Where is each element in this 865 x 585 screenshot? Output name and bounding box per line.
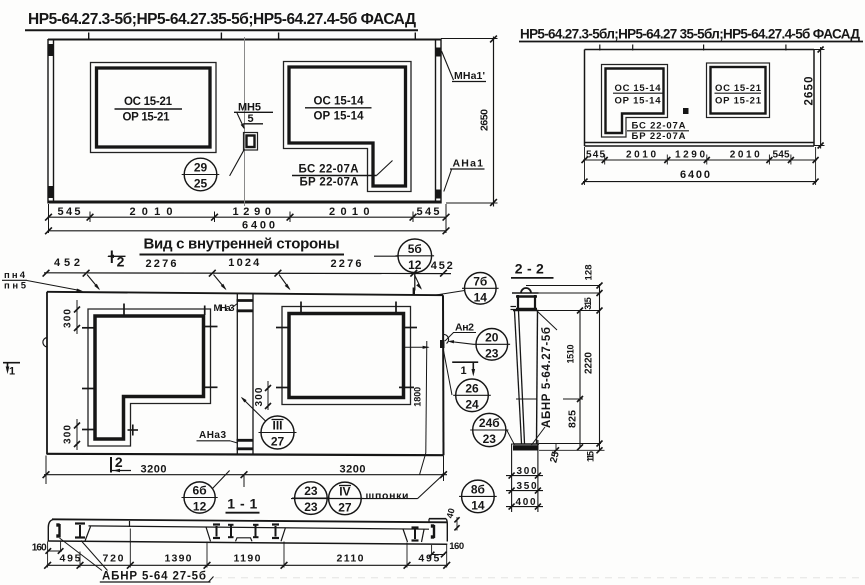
svg-text:шпонки: шпонки: [366, 490, 409, 502]
svg-text:Ан2: Ан2: [455, 322, 474, 334]
svg-text:АБНР 5-64.27-5б: АБНР 5-64.27-5б: [541, 327, 553, 428]
svg-text:12: 12: [193, 500, 207, 514]
svg-text:23: 23: [483, 432, 497, 446]
svg-text:БС 22-07А: БС 22-07А: [299, 164, 359, 176]
svg-text:1190: 1190: [234, 553, 261, 565]
svg-text:2220: 2220: [584, 352, 595, 374]
svg-text:ОС 15-21: ОС 15-21: [124, 96, 173, 108]
svg-text:25: 25: [194, 177, 208, 191]
svg-text:14: 14: [474, 290, 488, 304]
svg-text:БС 22-07А: БС 22-07А: [632, 121, 686, 132]
svg-text:545: 545: [586, 150, 605, 161]
svg-text:ОС 15-21: ОС 15-21: [715, 83, 762, 94]
svg-text:НР5-64.27.3-5б;НР5-64.27.35-5б: НР5-64.27.3-5б;НР5-64.27.35-5б;НР5-64.27…: [28, 11, 416, 28]
svg-text:2: 2: [115, 454, 123, 470]
svg-text:24б: 24б: [479, 416, 500, 430]
svg-text:АНа3: АНа3: [199, 430, 226, 441]
svg-text:350: 350: [517, 481, 537, 492]
svg-text:315: 315: [583, 297, 593, 310]
svg-text:1: 1: [460, 365, 466, 377]
svg-text:1024: 1024: [228, 257, 260, 269]
svg-text:300: 300: [517, 466, 537, 477]
svg-text:ОР 15-21: ОР 15-21: [715, 96, 762, 107]
svg-text:160: 160: [449, 541, 464, 552]
svg-text:400: 400: [516, 497, 536, 508]
svg-text:825: 825: [567, 410, 579, 428]
svg-text:23: 23: [304, 484, 318, 498]
svg-text:14: 14: [471, 498, 485, 512]
svg-text:7б: 7б: [473, 274, 487, 288]
svg-text:27: 27: [271, 435, 285, 449]
svg-text:300: 300: [254, 387, 265, 406]
svg-text:1: 1: [9, 366, 15, 378]
svg-text:2650: 2650: [803, 77, 815, 106]
svg-text:ОР 15-14: ОР 15-14: [615, 96, 662, 107]
svg-text:452: 452: [54, 257, 80, 269]
svg-text:1-1: 1-1: [227, 496, 257, 512]
svg-text:26: 26: [465, 381, 479, 395]
svg-text:23: 23: [304, 500, 318, 514]
svg-text:пн4: пн4: [4, 270, 26, 281]
svg-text:545: 545: [773, 150, 790, 161]
svg-text:НР5-64.27.3-5бл;НР5-64.27 35-5: НР5-64.27.3-5бл;НР5-64.27 35-5бл;НР5-64.…: [520, 27, 860, 42]
svg-text:545: 545: [417, 206, 440, 218]
svg-text:8б: 8б: [471, 482, 485, 496]
svg-text:128: 128: [584, 265, 595, 281]
svg-text:27: 27: [338, 500, 352, 514]
svg-text:24: 24: [465, 397, 479, 411]
svg-text:2110: 2110: [337, 553, 364, 565]
svg-text:ОС 15-14: ОС 15-14: [314, 96, 365, 108]
svg-text:1510: 1510: [566, 345, 576, 364]
svg-text:5: 5: [247, 113, 253, 125]
svg-text:МНа1': МНа1': [454, 70, 485, 82]
svg-text:452: 452: [431, 260, 453, 272]
svg-text:3200: 3200: [141, 464, 167, 476]
svg-text:6400: 6400: [680, 169, 710, 181]
svg-text:495: 495: [418, 553, 439, 565]
svg-text:1800: 1800: [412, 387, 422, 407]
svg-text:2-2: 2-2: [515, 261, 544, 277]
svg-text:ОР 15-14: ОР 15-14: [314, 111, 365, 123]
svg-text:БР 22-07А: БР 22-07А: [300, 177, 359, 189]
svg-text:IV: IV: [339, 484, 350, 498]
svg-text:пн5: пн5: [4, 281, 27, 292]
svg-text:ОС 15-14: ОС 15-14: [615, 83, 662, 94]
svg-text:2: 2: [117, 254, 125, 270]
svg-text:12: 12: [408, 258, 422, 272]
svg-text:3200: 3200: [340, 464, 366, 476]
svg-text:ОР 15-21: ОР 15-21: [123, 112, 171, 124]
svg-text:115: 115: [585, 451, 595, 462]
svg-text:300: 300: [63, 309, 74, 328]
svg-text:720: 720: [103, 553, 124, 565]
svg-text:300: 300: [63, 425, 74, 444]
svg-text:III: III: [272, 419, 282, 433]
svg-text:5б: 5б: [408, 242, 422, 256]
svg-text:2650: 2650: [479, 109, 491, 131]
svg-text:545: 545: [58, 206, 81, 218]
svg-text:20: 20: [485, 330, 499, 344]
svg-text:АНа1: АНа1: [453, 157, 484, 169]
svg-text:23: 23: [485, 346, 499, 360]
svg-text:6б: 6б: [193, 484, 207, 498]
svg-text:29: 29: [194, 161, 208, 175]
svg-text:160: 160: [32, 543, 47, 554]
svg-text:495: 495: [60, 553, 81, 565]
svg-text:1390: 1390: [165, 553, 192, 565]
svg-text:АБНР 5-64 27-5б: АБНР 5-64 27-5б: [102, 571, 206, 583]
svg-text:Вид с внутренней стороны: Вид с внутренней стороны: [144, 236, 340, 253]
svg-text:БР 22-07А: БР 22-07А: [632, 131, 686, 142]
